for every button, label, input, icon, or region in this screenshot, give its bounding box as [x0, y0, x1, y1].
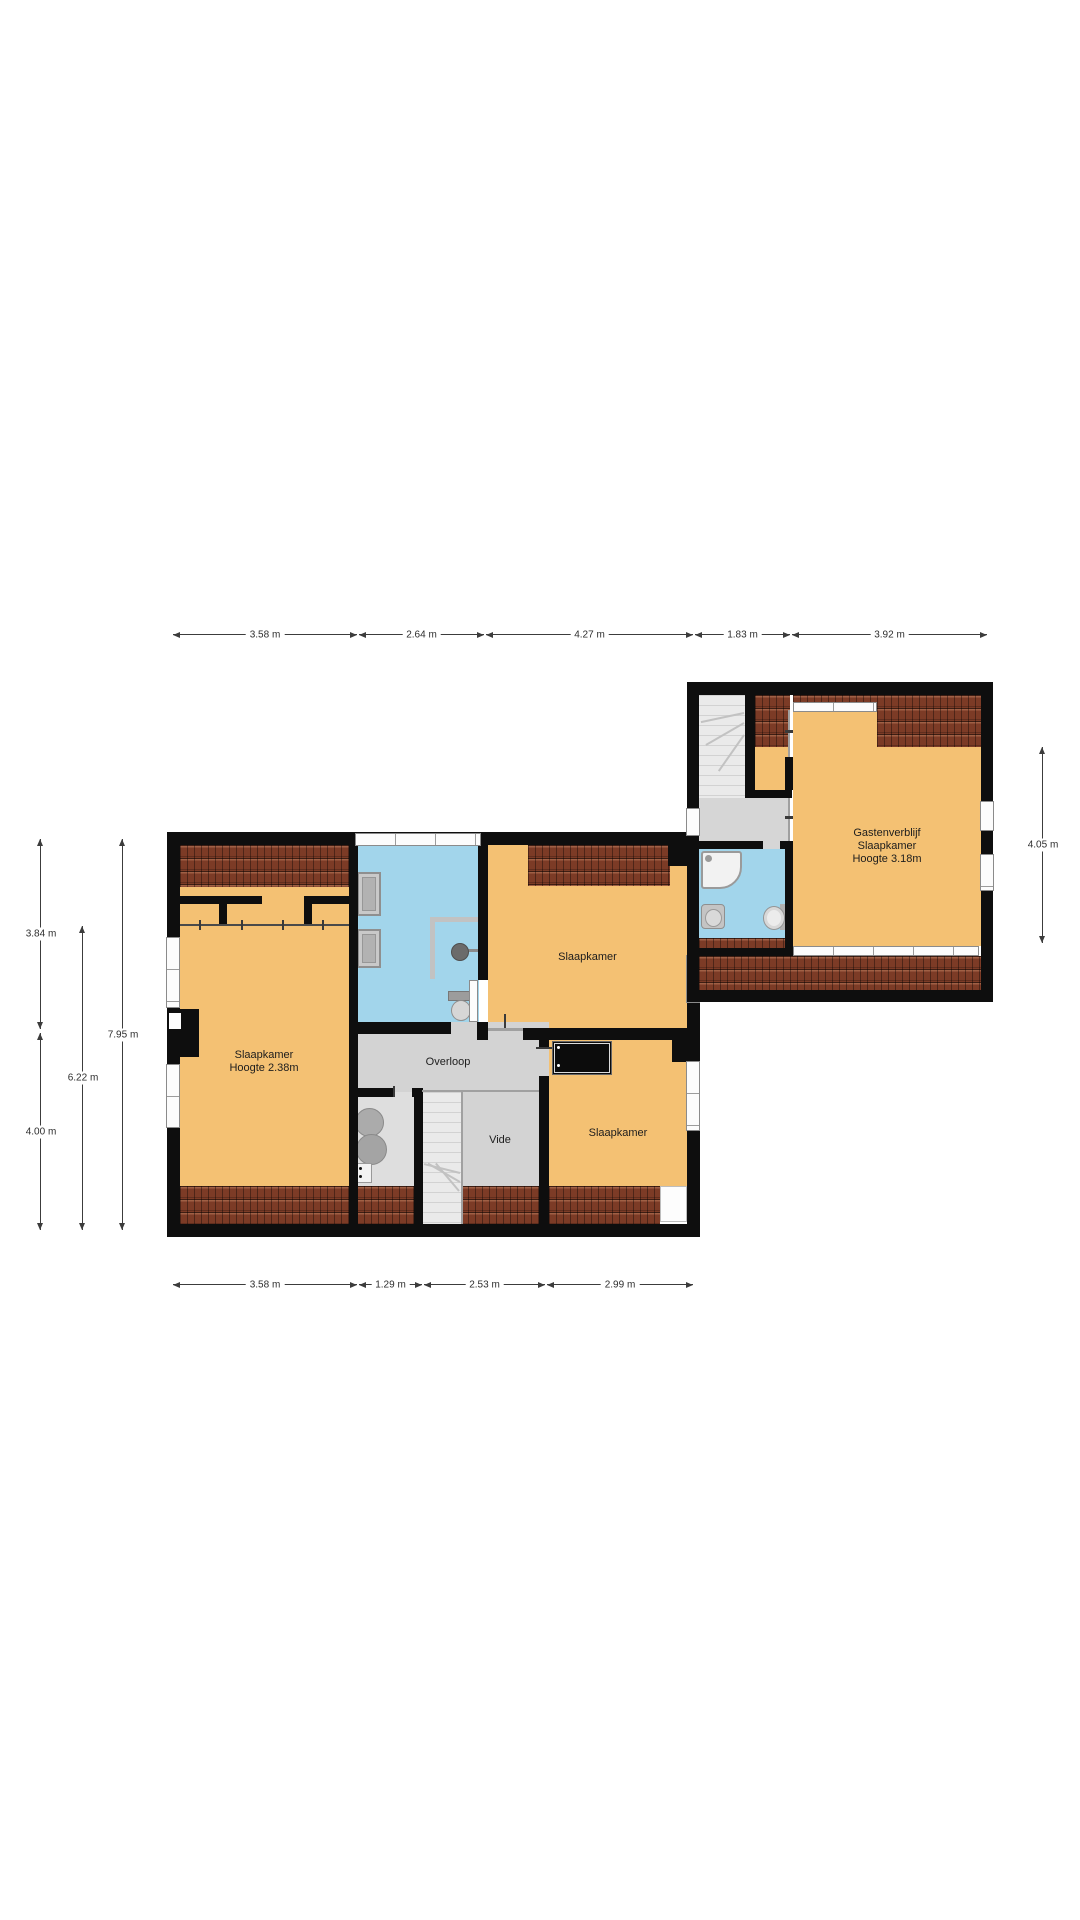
dimension-label: 3.58 m: [246, 630, 285, 641]
door-tick: [504, 1014, 506, 1028]
wall-outer-bottom: [167, 1224, 700, 1237]
guest-window-bottom: [793, 946, 979, 956]
dimension-label: 1.29 m: [371, 1280, 410, 1291]
wall-junction-notch: [672, 1030, 700, 1062]
guest-wall-stairs: [745, 695, 755, 798]
room-label-line: Slaapkamer: [488, 951, 687, 964]
shower-head-icon: [451, 943, 469, 961]
panel-dot: [359, 1175, 362, 1178]
dimension-top-4: 1.83 m: [695, 634, 790, 635]
dimension-label: 3.58 m: [246, 1280, 285, 1291]
roof-tiles-room-top: [528, 845, 670, 886]
guest-wall-top: [687, 682, 993, 695]
floorplan-page: { "labels": { "room_left_1": "Slaapkamer…: [0, 0, 1080, 1920]
shower-glass-left: [430, 917, 435, 979]
washing-machine: [355, 1108, 384, 1137]
dimension-top-2: 2.64 m: [359, 634, 484, 635]
guest-wall-bath-right: [785, 841, 793, 950]
dimension-top-5: 3.92 m: [792, 634, 987, 635]
roof-tiles-room-bottom: [549, 1186, 660, 1224]
wall-room-bottom-left-a: [539, 1028, 549, 1049]
guest-window-top: [793, 702, 877, 712]
room-label-vide: Vide: [461, 1134, 539, 1147]
room-label-slaapkamer-left: Slaapkamer Hoogte 2.38m: [184, 1049, 344, 1075]
radiator: [357, 929, 381, 968]
dimension-bottom-3: 2.53 m: [424, 1284, 545, 1285]
dimension-left-400: 4.00 m: [40, 1033, 41, 1230]
guest-roof-tiles-bottom: [699, 956, 981, 990]
dimension-label: 7.95 m: [105, 1028, 142, 1041]
radiator: [357, 872, 381, 916]
dimension-top-3: 4.27 m: [486, 634, 693, 635]
dimension-label: 2.99 m: [601, 1280, 640, 1291]
room-label-line: Gastenverblijf: [793, 827, 981, 840]
door-tick: [785, 730, 793, 733]
chimney-notch: [169, 1013, 181, 1029]
dimension-right-405: 4.05 m: [1042, 747, 1043, 943]
window-right-lower: [686, 1061, 700, 1131]
wall-corner-block: [477, 1022, 488, 1040]
dimension-label: 2.53 m: [465, 1280, 504, 1291]
window-left-lower: [166, 1064, 180, 1128]
sink-basin: [705, 909, 722, 927]
room-label-line: Slaapkamer: [549, 1127, 687, 1140]
threshold-room-top: [488, 1028, 523, 1031]
tv-dot: [557, 1046, 560, 1049]
room-label-overloop: Overloop: [357, 1056, 539, 1069]
rail-tick: [322, 920, 324, 930]
wall-bathroom-right: [478, 845, 488, 980]
guest-roof-tiles-small: [755, 695, 790, 747]
room-label-line: Hoogte 2.38m: [184, 1062, 344, 1075]
shower-glass-top: [430, 917, 481, 922]
room-label-line: Hoogte 3.18m: [793, 853, 981, 866]
roof-tiles-vide: [461, 1186, 539, 1224]
roof-tiles-laundry: [357, 1186, 422, 1224]
room-label-slaapkamer-top: Slaapkamer: [488, 951, 687, 964]
dimension-bottom-1: 3.58 m: [173, 1284, 357, 1285]
dimension-left-795: 7.95 m: [122, 839, 123, 1230]
guest-partition-lower: [788, 798, 790, 841]
dimension-label: 6.22 m: [65, 1072, 102, 1085]
dimension-top-1: 3.58 m: [173, 634, 357, 635]
guest-wall-bath-top-a: [699, 841, 763, 849]
dimension-left-622: 6.22 m: [82, 926, 83, 1230]
dimension-label: 3.92 m: [870, 630, 909, 641]
guest-window-right-upper: [980, 801, 994, 831]
room-label-gastenverblijf: Gastenverblijf Slaapkamer Hoogte 3.18m: [793, 827, 981, 866]
room-label-line: Slaapkamer: [793, 840, 981, 853]
dimension-bottom-2: 1.29 m: [359, 1284, 422, 1285]
wall-closet-stub: [304, 896, 312, 925]
dimension-bottom-4: 2.99 m: [547, 1284, 693, 1285]
guest-window-right-lower: [980, 854, 994, 891]
room-label-line: Slaapkamer: [184, 1049, 344, 1062]
guest-wall-room-left: [785, 757, 793, 790]
window-top: [355, 833, 481, 846]
dimension-label: 4.00 m: [23, 1125, 60, 1138]
dimension-label: 4.27 m: [570, 630, 609, 641]
dimension-label: 3.84 m: [23, 928, 60, 941]
bath-faucet: [705, 855, 712, 862]
door-tick: [785, 816, 793, 819]
guest-wall-left: [687, 695, 699, 1002]
guest-window-left: [686, 808, 700, 836]
guest-wall-bath-bottom: [699, 948, 793, 956]
guest-wall-bottom: [687, 990, 993, 1002]
rail-tick: [199, 920, 201, 930]
window-left-upper: [166, 937, 180, 1008]
wall-room-bottom-left-b: [539, 1076, 549, 1224]
toilet-bowl: [451, 1000, 471, 1021]
wall-laundry-top-a: [357, 1088, 394, 1097]
guest-roof-tiles-topright: [877, 695, 981, 747]
panel-dot: [359, 1167, 362, 1170]
dimension-label: 1.83 m: [723, 630, 762, 641]
wall-room-left-right: [349, 845, 358, 1224]
stairwell-edge-right: [461, 1092, 463, 1224]
dimension-left-384: 3.84 m: [40, 839, 41, 1029]
room-label-slaapkamer-bottom: Slaapkamer: [549, 1127, 687, 1140]
dimension-label: 4.05 m: [1025, 839, 1062, 852]
roof-tiles-left-top: [180, 845, 349, 887]
wall-laundry-right: [414, 1088, 423, 1224]
guest-partition-upper: [788, 710, 790, 757]
rail-tick: [241, 920, 243, 930]
door-leaf-bathroom: [469, 980, 478, 1022]
dimension-label: 2.64 m: [402, 630, 441, 641]
wall-bathroom-bottom: [349, 1022, 451, 1034]
guest-wall-bath-top-b: [780, 841, 785, 849]
stairs-guest: [699, 695, 745, 798]
tv-panel: [552, 1041, 612, 1075]
room-label-line: Overloop: [357, 1056, 539, 1069]
rail-tick: [282, 920, 284, 930]
door-tick: [393, 1086, 395, 1097]
washing-machine: [356, 1134, 387, 1165]
skylight: [660, 1186, 687, 1222]
wall-closet-stub: [219, 896, 227, 925]
wall-notch-room-top: [668, 845, 687, 866]
door-tick: [536, 1047, 552, 1049]
guest-wall-cell: [745, 790, 792, 798]
guest-wall-right: [981, 682, 993, 990]
tv-dot: [557, 1064, 560, 1067]
room-label-line: Vide: [461, 1134, 539, 1147]
stairs-main: [422, 1092, 461, 1224]
stairwell-edge-top: [422, 1090, 539, 1092]
roof-tiles-left-bottom: [180, 1186, 349, 1224]
guest-toilet-bowl: [763, 906, 785, 930]
